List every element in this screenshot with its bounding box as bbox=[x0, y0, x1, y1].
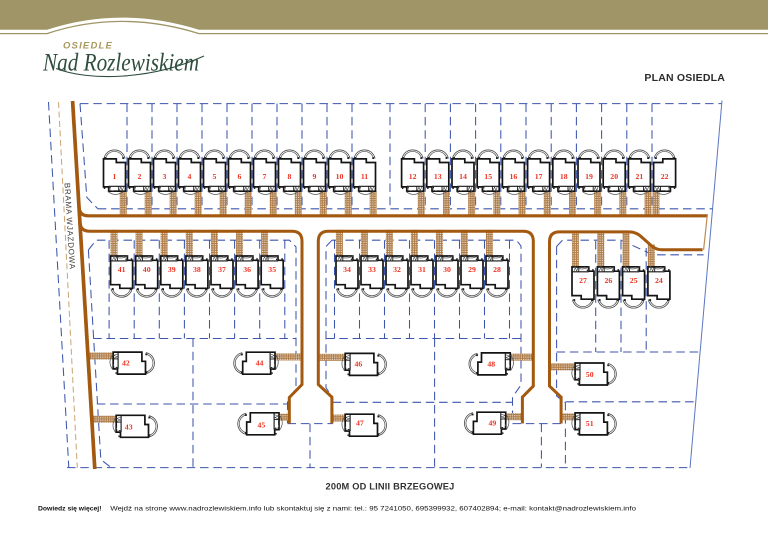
svg-text:14: 14 bbox=[459, 172, 467, 181]
svg-text:3: 3 bbox=[163, 172, 167, 181]
svg-text:47: 47 bbox=[356, 418, 364, 427]
svg-text:45: 45 bbox=[258, 421, 266, 430]
svg-text:18: 18 bbox=[560, 172, 568, 181]
svg-text:15: 15 bbox=[484, 172, 492, 181]
svg-text:44: 44 bbox=[256, 359, 264, 368]
svg-text:50: 50 bbox=[586, 370, 594, 379]
svg-text:27: 27 bbox=[579, 276, 587, 285]
svg-text:28: 28 bbox=[493, 265, 501, 274]
svg-text:26: 26 bbox=[605, 276, 613, 285]
svg-text:1: 1 bbox=[113, 172, 117, 181]
svg-text:49: 49 bbox=[489, 418, 497, 427]
svg-text:40: 40 bbox=[143, 265, 151, 274]
svg-text:5: 5 bbox=[213, 172, 217, 181]
svg-text:9: 9 bbox=[313, 172, 317, 181]
svg-text:12: 12 bbox=[409, 172, 417, 181]
svg-text:Nad Rozlewiskiem: Nad Rozlewiskiem bbox=[42, 49, 199, 76]
svg-text:29: 29 bbox=[468, 265, 476, 274]
svg-text:48: 48 bbox=[487, 360, 495, 369]
svg-text:37: 37 bbox=[218, 265, 226, 274]
svg-text:PLAN OSIEDLA: PLAN OSIEDLA bbox=[644, 72, 725, 84]
svg-text:36: 36 bbox=[243, 265, 251, 274]
svg-text:11: 11 bbox=[361, 172, 368, 181]
svg-text:41: 41 bbox=[118, 265, 126, 274]
svg-text:39: 39 bbox=[168, 265, 176, 274]
svg-text:20: 20 bbox=[610, 172, 618, 181]
svg-text:16: 16 bbox=[510, 172, 518, 181]
svg-text:17: 17 bbox=[535, 172, 543, 181]
svg-text:22: 22 bbox=[661, 172, 669, 181]
svg-text:34: 34 bbox=[343, 265, 351, 274]
svg-text:31: 31 bbox=[418, 265, 426, 274]
svg-text:7: 7 bbox=[263, 172, 267, 181]
svg-text:30: 30 bbox=[443, 265, 451, 274]
svg-text:10: 10 bbox=[336, 172, 344, 181]
svg-text:24: 24 bbox=[655, 276, 663, 285]
svg-text:2: 2 bbox=[138, 172, 142, 181]
svg-text:42: 42 bbox=[122, 359, 130, 368]
svg-text:21: 21 bbox=[636, 172, 644, 181]
svg-text:38: 38 bbox=[193, 265, 201, 274]
svg-text:200M OD LINII BRZEGOWEJ: 200M OD LINII BRZEGOWEJ bbox=[326, 481, 455, 492]
svg-text:43: 43 bbox=[125, 422, 133, 431]
svg-text:25: 25 bbox=[630, 276, 638, 285]
svg-text:33: 33 bbox=[368, 265, 376, 274]
svg-text:35: 35 bbox=[268, 265, 276, 274]
svg-text:46: 46 bbox=[355, 360, 363, 369]
svg-text:8: 8 bbox=[288, 172, 292, 181]
svg-text:19: 19 bbox=[585, 172, 593, 181]
svg-text:32: 32 bbox=[393, 265, 401, 274]
svg-text:4: 4 bbox=[188, 172, 192, 181]
svg-text:51: 51 bbox=[586, 419, 594, 428]
svg-text:13: 13 bbox=[434, 172, 442, 181]
svg-text:Dowiedz się więcej! Wejdź na s: Dowiedz się więcej! Wejdź na stronę www.… bbox=[38, 506, 636, 513]
svg-text:6: 6 bbox=[238, 172, 242, 181]
